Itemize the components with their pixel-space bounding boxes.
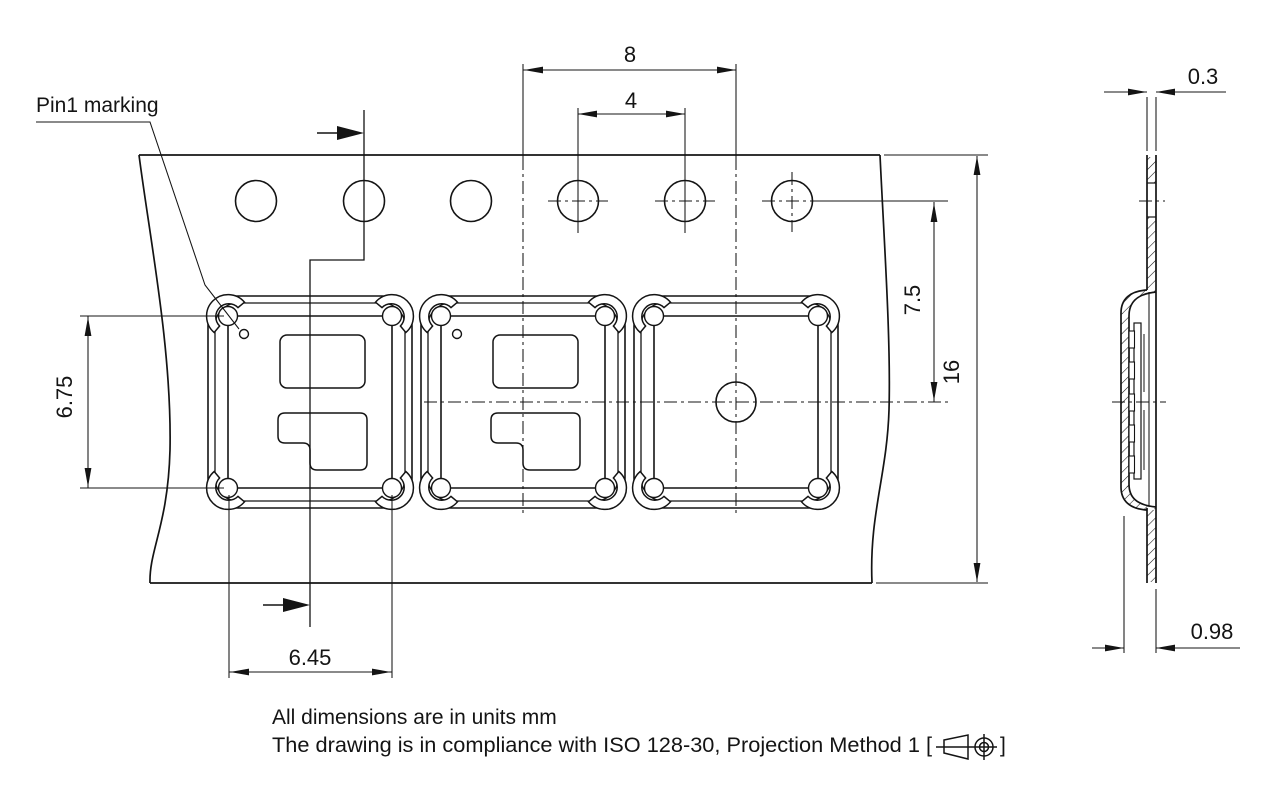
section-arrow — [283, 598, 310, 612]
compliance-note: The drawing is in compliance with ISO 12… — [272, 734, 932, 757]
dimension-arrow — [1128, 89, 1147, 96]
dim-tape-width-16: 16 — [939, 360, 964, 384]
sprocket-hole-3 — [451, 181, 492, 222]
compliance-note-close-bracket: ] — [1000, 734, 1006, 757]
drawing-linework — [36, 64, 1240, 678]
sprocket-hole-1 — [236, 181, 277, 222]
pin1-leader-line — [36, 122, 239, 329]
sideview-component-body — [1134, 323, 1141, 479]
dimension-arrow — [372, 669, 391, 676]
dimension-arrow — [85, 317, 92, 336]
sideview-hatch — [1147, 217, 1156, 289]
dimension-arrow — [974, 156, 981, 175]
sideview-hatch — [1121, 290, 1156, 316]
pocket-corner-post — [645, 479, 664, 498]
pin1-marking-label: Pin1 marking — [36, 94, 159, 117]
component-top-feature — [493, 335, 578, 388]
sideview-component-terminal — [1129, 362, 1135, 379]
pocket-corner-post — [809, 307, 828, 326]
dim-component-width-6-45: 6.45 — [289, 645, 332, 670]
pocket-corner-post — [596, 479, 615, 498]
dimension-arrow — [1156, 645, 1175, 652]
component-top-feature — [280, 335, 365, 388]
sideview-hatch — [1147, 510, 1156, 582]
dim-hole-to-pocket-7-5: 7.5 — [900, 285, 925, 316]
dim-tape-thickness-0-3: 0.3 — [1188, 64, 1219, 89]
dimension-arrow — [974, 563, 981, 582]
dimension-arrow — [524, 67, 543, 74]
units-note: All dimensions are in units mm — [272, 706, 557, 729]
sideview-component-terminal — [1129, 425, 1135, 442]
carrier-tape-drawing: Pin1 marking 8 4 7.5 16 6.75 6.45 0.3 0.… — [0, 0, 1280, 803]
sideview-component-terminal — [1129, 456, 1135, 473]
pocket-corner-post — [809, 479, 828, 498]
pocket-corner-post — [383, 307, 402, 326]
pin1-marking-dot — [240, 330, 249, 339]
pocket-corner-post — [432, 479, 451, 498]
section-arrow — [337, 126, 364, 140]
dimension-arrow — [931, 203, 938, 222]
tape-left-break-line — [139, 155, 170, 583]
sideview-component-terminal — [1129, 331, 1135, 348]
dim-component-height-6-75: 6.75 — [52, 376, 77, 419]
dimension-arrow — [578, 111, 597, 118]
pocket-corner-post — [596, 307, 615, 326]
sideview-hatch — [1121, 313, 1129, 487]
dimension-arrow — [85, 468, 92, 487]
sideview-hatch — [1147, 157, 1156, 183]
dimension-arrow — [1156, 89, 1175, 96]
pocket-corner-post — [645, 307, 664, 326]
pin1-marking-dot — [453, 330, 462, 339]
dim-pocket-pitch-8: 8 — [624, 42, 636, 67]
dimension-arrow — [931, 382, 938, 401]
tape-right-break-line — [872, 155, 890, 583]
dimension-arrow — [717, 67, 736, 74]
dimension-arrow — [1105, 645, 1124, 652]
dim-sprocket-pitch-4: 4 — [625, 88, 637, 113]
pocket-corner-post — [432, 307, 451, 326]
technical-drawing-canvas: Pin1 marking 8 4 7.5 16 6.75 6.45 0.3 0.… — [0, 0, 1280, 803]
projection-method-icon — [936, 734, 997, 760]
dimension-arrow — [666, 111, 685, 118]
dim-pocket-depth-0-98: 0.98 — [1191, 619, 1234, 644]
dimension-arrow — [230, 669, 249, 676]
pocket-corner-post — [383, 479, 402, 498]
